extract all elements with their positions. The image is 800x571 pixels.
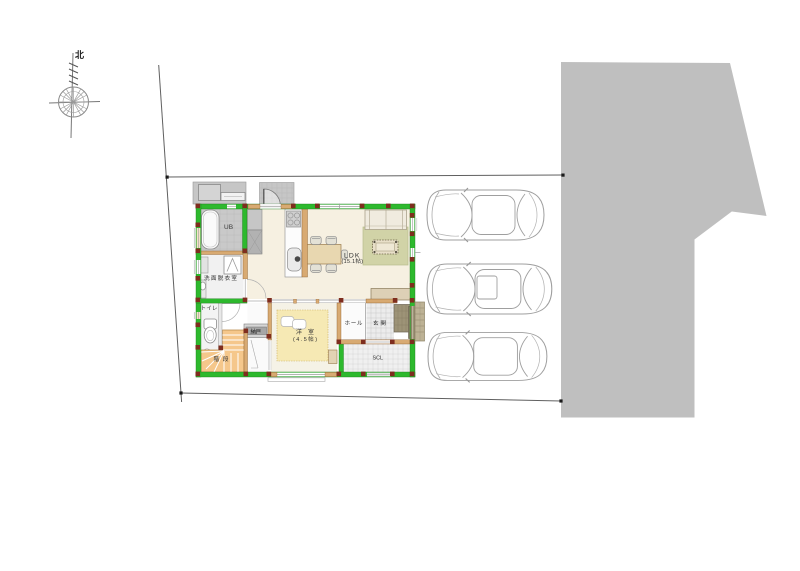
svg-text:北: 北 <box>75 49 84 60</box>
svg-text:(4.5帖): (4.5帖) <box>293 335 317 343</box>
svg-text:ホール: ホール <box>345 320 363 327</box>
svg-text:洗面脱衣室: 洗面脱衣室 <box>204 274 237 282</box>
svg-text:UB: UB <box>224 224 233 231</box>
svg-text:トイレ: トイレ <box>201 306 218 312</box>
svg-text:(15.1帖): (15.1帖) <box>342 257 364 265</box>
svg-text:SCL: SCL <box>373 356 384 362</box>
svg-text:納戸: 納戸 <box>251 328 262 336</box>
svg-text:玄関: 玄関 <box>373 319 386 327</box>
